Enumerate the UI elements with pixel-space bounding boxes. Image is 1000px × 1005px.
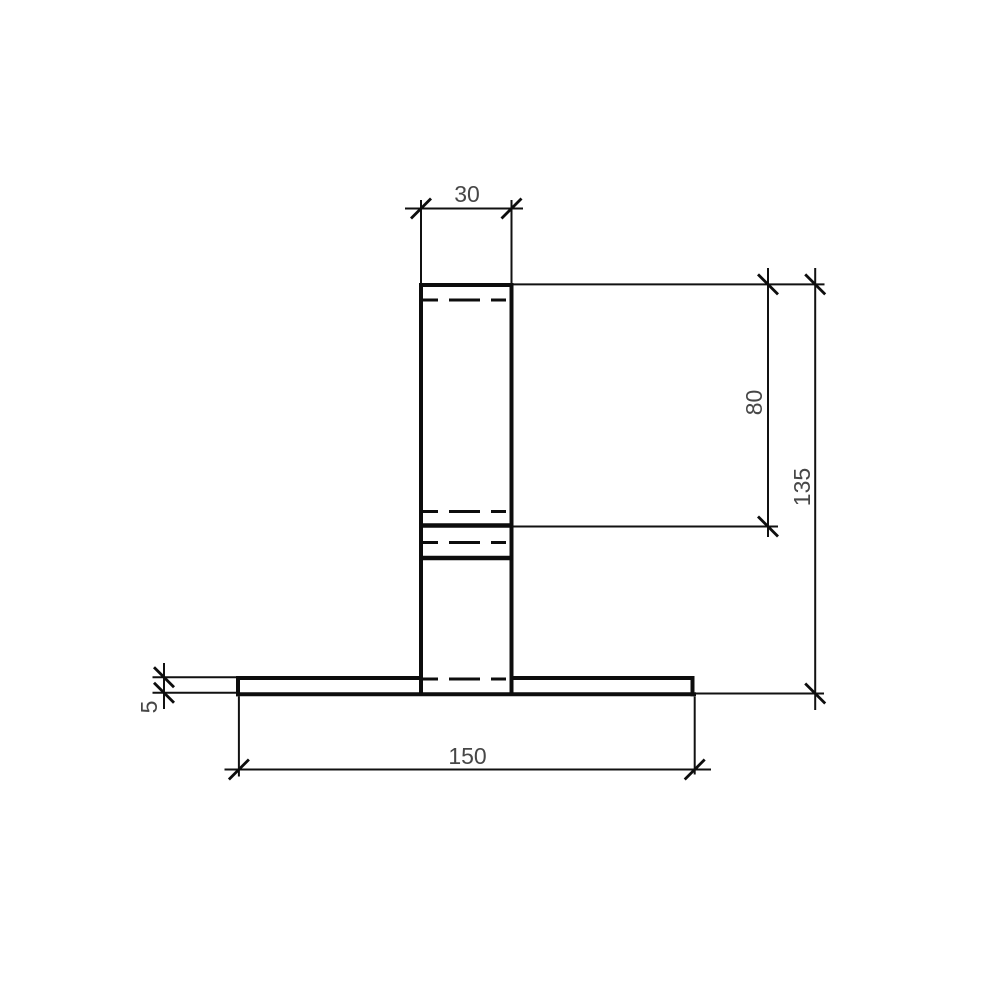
svg-text:5: 5 [136, 701, 162, 714]
svg-text:150: 150 [448, 743, 486, 769]
svg-text:30: 30 [454, 181, 480, 207]
svg-text:80: 80 [741, 390, 767, 416]
svg-text:135: 135 [789, 468, 815, 506]
